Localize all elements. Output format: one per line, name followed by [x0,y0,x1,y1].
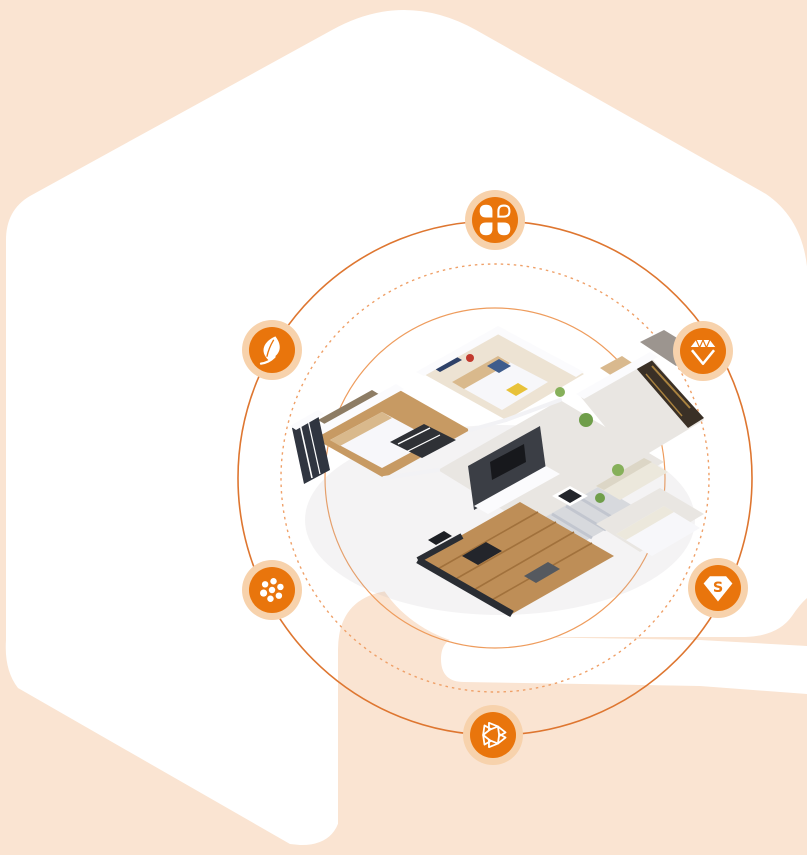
badge-gem-circle [680,328,726,374]
badge-clover-circle [472,197,518,243]
diamond-gem-icon [686,334,720,368]
badge-leaf[interactable] [242,320,302,380]
hero-graphic: S [0,0,807,855]
badge-sgem[interactable]: S [688,558,748,618]
badge-gem[interactable] [673,321,733,381]
badge-sgem-circle: S [695,565,741,611]
badge-triangles-circle [470,712,516,758]
badge-clover[interactable] [465,190,525,250]
sgem-letter: S [713,580,723,596]
s-gem-icon: S [700,570,736,606]
triangle-ring-icon [475,717,511,753]
badge-dots[interactable] [242,560,302,620]
badge-dots-circle [249,567,295,613]
dot-flower-icon [255,573,289,607]
clover-petals-icon [478,203,512,237]
backdrop-canvas [0,0,807,855]
badge-leaf-circle [249,327,295,373]
leaf-icon [255,333,289,367]
badge-triangles[interactable] [463,705,523,765]
